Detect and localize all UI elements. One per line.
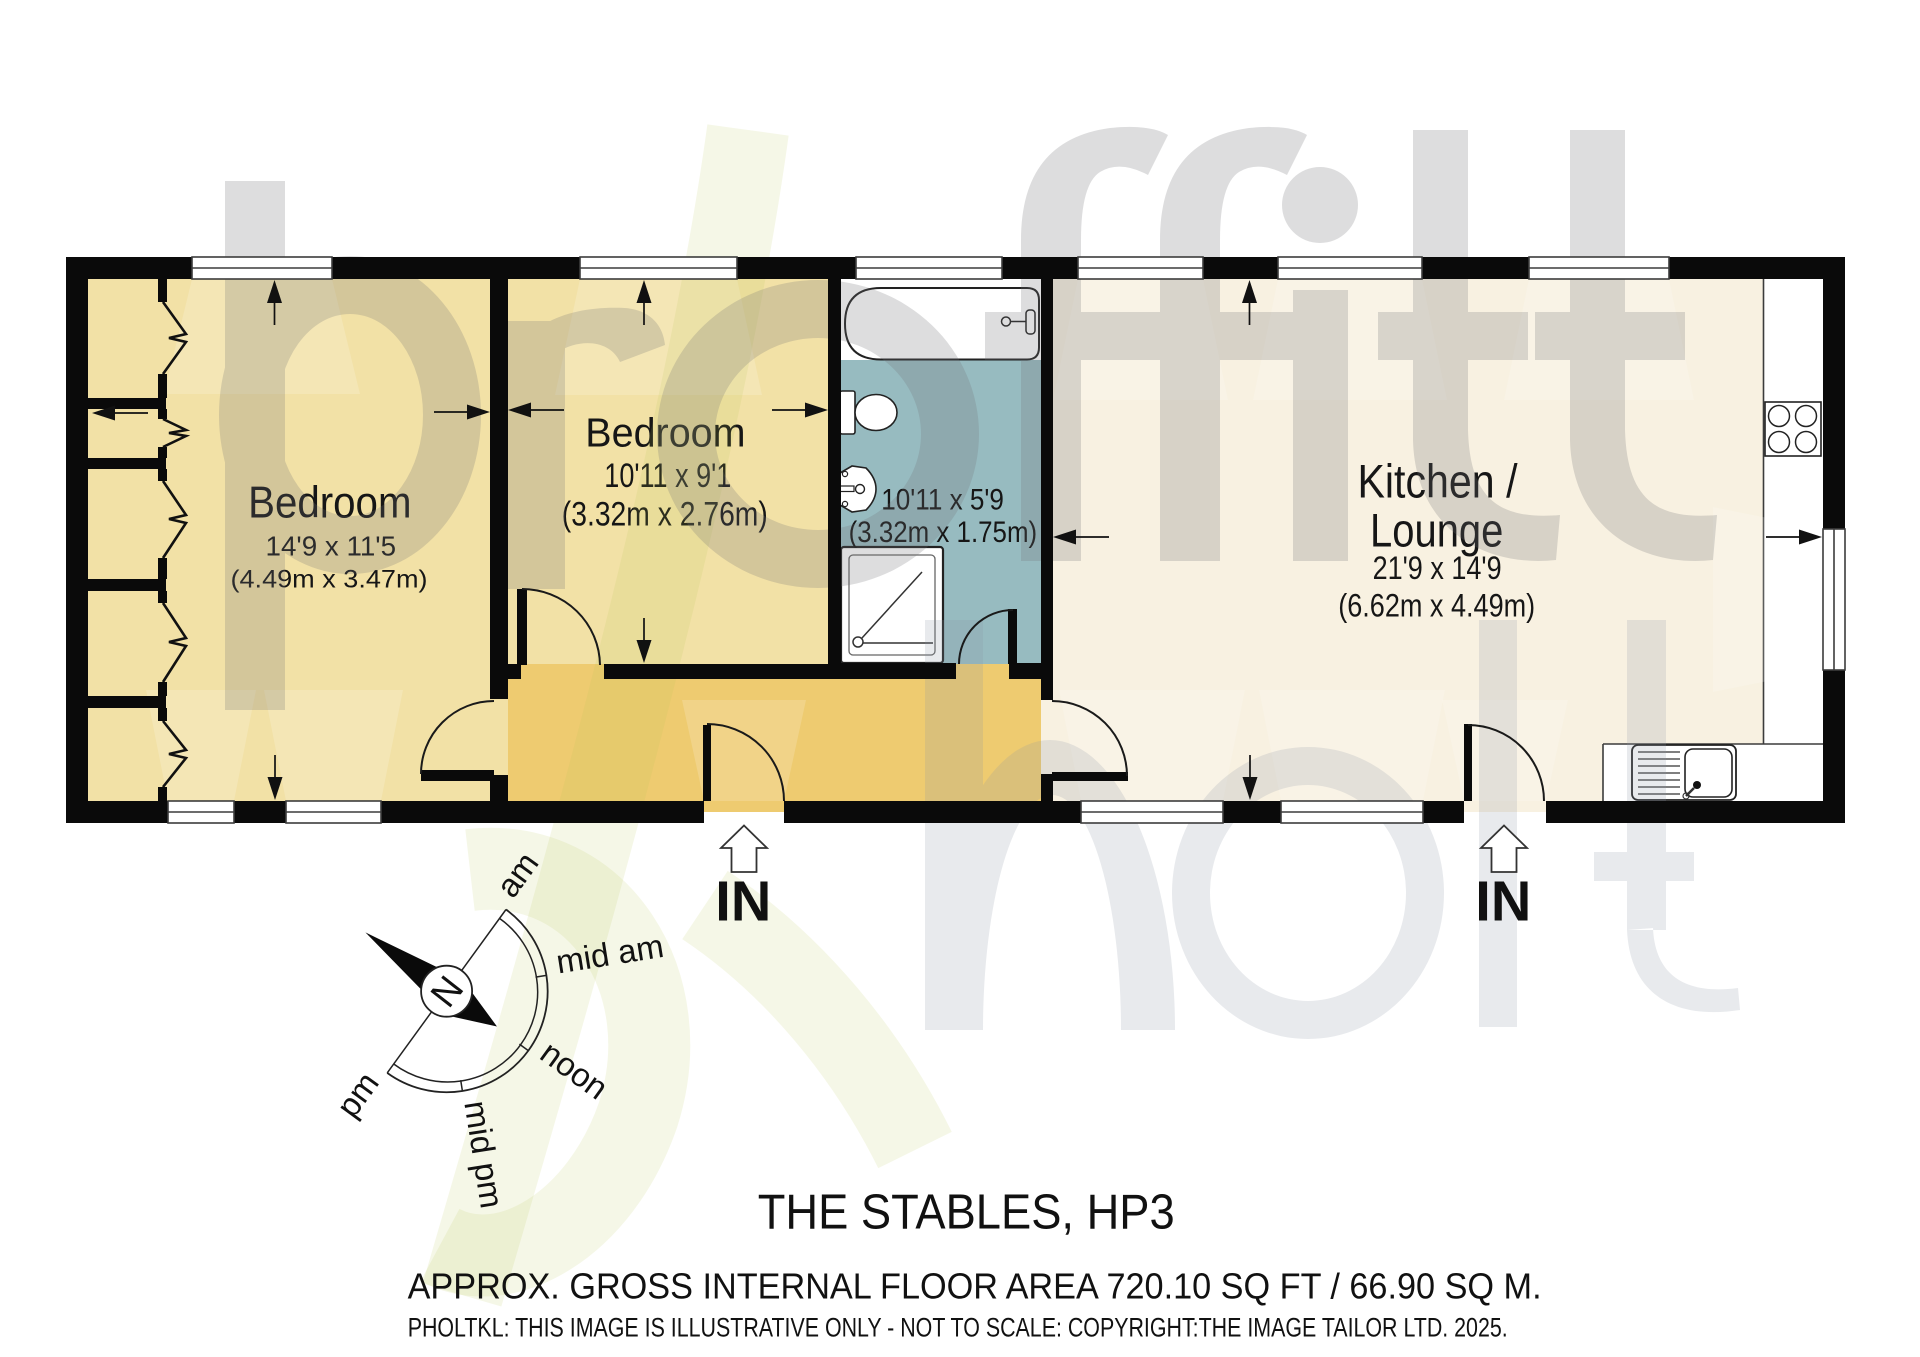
- svg-text:(6.62m x 4.49m): (6.62m x 4.49m): [1338, 588, 1535, 624]
- svg-text:21'9 x 14'9: 21'9 x 14'9: [1373, 550, 1502, 586]
- svg-text:THE STABLES, HP3: THE STABLES, HP3: [758, 1184, 1175, 1239]
- svg-text:APPROX. GROSS INTERNAL FLOOR A: APPROX. GROSS INTERNAL FLOOR AREA 720.10…: [408, 1265, 1542, 1306]
- svg-text:PHOLTKL: THIS IMAGE IS ILLUSTR: PHOLTKL: THIS IMAGE IS ILLUSTRATIVE ONLY…: [408, 1313, 1508, 1343]
- svg-text:IN: IN: [715, 870, 771, 933]
- svg-text:IN: IN: [1475, 870, 1531, 933]
